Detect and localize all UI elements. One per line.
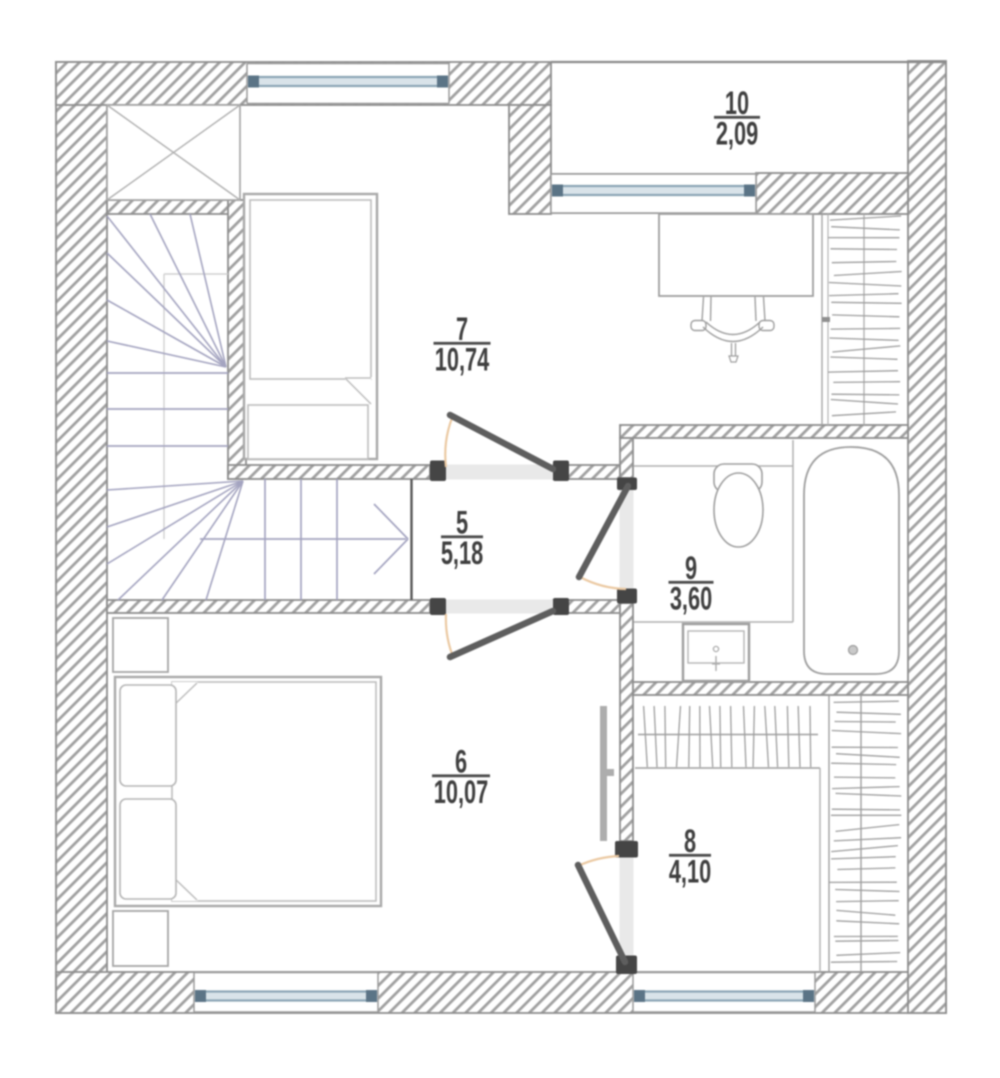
- svg-text:5,18: 5,18: [441, 535, 483, 571]
- svg-text:10,74: 10,74: [435, 341, 490, 377]
- svg-text:2,09: 2,09: [716, 115, 758, 151]
- svg-text:4,10: 4,10: [669, 853, 711, 889]
- svg-text:10,07: 10,07: [434, 774, 488, 810]
- svg-text:3,60: 3,60: [670, 580, 712, 616]
